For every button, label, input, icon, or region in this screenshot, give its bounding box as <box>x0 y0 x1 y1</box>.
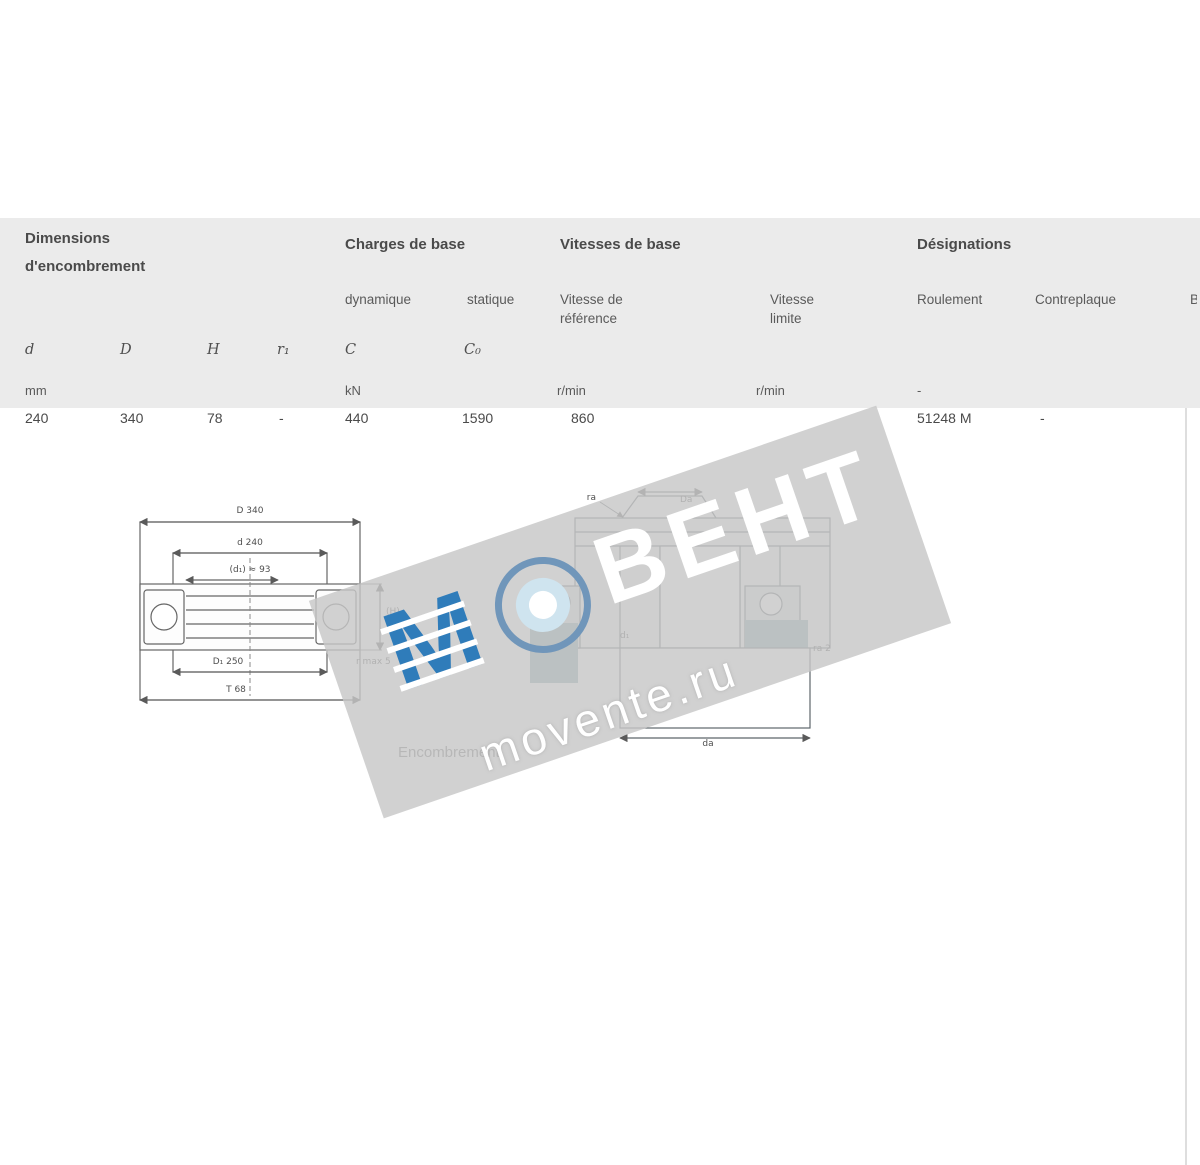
column-C0: C₀ <box>464 342 481 358</box>
speed-reference-line1: Vitesse de <box>560 290 623 309</box>
cell-height-H: 78 <box>207 410 223 426</box>
column-D: D <box>120 342 132 358</box>
cell-bore-d: 240 <box>25 410 48 426</box>
unit-rmin-lim: r/min <box>756 383 785 398</box>
column-d: d <box>25 342 34 358</box>
cell-washer: - <box>1040 410 1045 426</box>
subheader-static: statique <box>467 290 514 309</box>
subheader-clipped-column: B <box>1190 290 1197 309</box>
watermark: M ВЕНТ movente.ru <box>309 406 951 819</box>
speed-limit-line1: Vitesse <box>770 290 814 309</box>
subheader-bearing: Roulement <box>917 290 982 309</box>
product-page: { "header": { "dimensions": { "title": "… <box>0 0 1200 1165</box>
dim-label-bottom-outer: T 68 <box>225 685 246 695</box>
watermark-brand: ВЕНТ <box>583 434 892 620</box>
dim-label-bottom-inner: D₁ 250 <box>213 657 244 667</box>
column-r1: r₁ <box>277 342 290 358</box>
speeds-title: Vitesses de base <box>560 236 681 253</box>
dim-label-bore: d 240 <box>237 538 263 548</box>
cell-ref-speed: 860 <box>571 410 594 426</box>
unit-kn: kN <box>345 383 361 398</box>
speed-reference-line2: référence <box>560 309 617 328</box>
content-divider <box>1185 408 1187 1165</box>
dimensions-title: Dimensions <box>25 230 110 247</box>
cell-r1: - <box>279 410 284 426</box>
cell-outer-D: 340 <box>120 410 143 426</box>
dimensions-subtitle: d'encombrement <box>25 258 145 275</box>
loads-title: Charges de base <box>345 236 465 253</box>
column-C: C <box>345 342 356 358</box>
speed-limit-line2: limite <box>770 309 802 328</box>
bearing-ring-icon <box>482 544 604 666</box>
bearing-ring-inner-icon <box>509 571 578 640</box>
dim-label-da: da <box>702 739 713 749</box>
unit-mm: mm <box>25 383 47 398</box>
designations-title: Désignations <box>917 236 1011 253</box>
cell-designation: 51248 M <box>917 410 971 426</box>
cell-static-load: 1590 <box>462 410 493 426</box>
cell-dynamic-load: 440 <box>345 410 368 426</box>
subheader-washer: Contreplaque <box>1035 290 1116 309</box>
unit-rmin-ref: r/min <box>557 383 586 398</box>
unit-designation: - <box>917 383 921 398</box>
dim-label-inner: (d₁) ≈ 93 <box>229 565 270 575</box>
watermark-logo-m: M <box>372 578 489 705</box>
column-H: H <box>207 342 220 358</box>
logo-letter: M <box>369 566 498 715</box>
subheader-dynamic: dynamique <box>345 290 411 309</box>
dim-label-outer-diameter: D 340 <box>237 506 264 516</box>
